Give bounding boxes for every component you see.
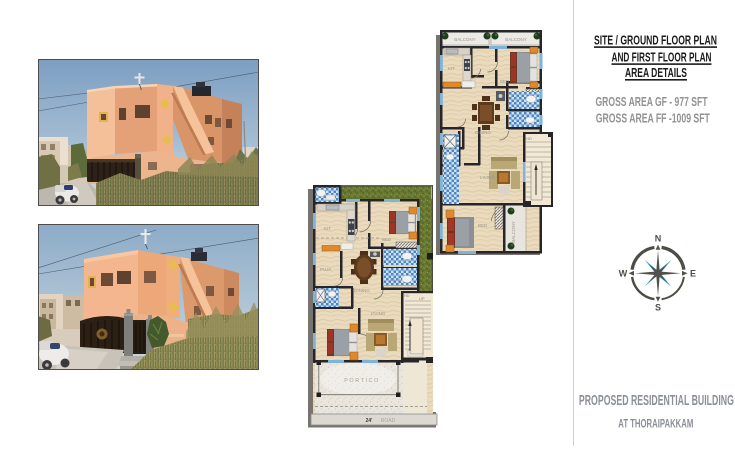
svg-text:BALCONY: BALCONY (454, 37, 476, 42)
svg-text:S: S (655, 303, 661, 313)
svg-text:DINING: DINING (475, 130, 491, 135)
svg-text:N: N (655, 234, 662, 244)
svg-text:BATH: BATH (390, 277, 400, 282)
svg-text:BALCONY: BALCONY (505, 37, 527, 42)
svg-text:SITE / GROUND FLOOR PLAN: SITE / GROUND FLOOR PLAN (594, 32, 717, 47)
svg-text:HD: HD (404, 294, 410, 298)
svg-text:W: W (619, 269, 628, 279)
svg-text:PORTICO: PORTICO (344, 378, 379, 384)
svg-text:KIT: KIT (324, 226, 331, 231)
svg-text:LIVING: LIVING (480, 175, 495, 180)
svg-text:DINING: DINING (354, 288, 370, 293)
svg-text:BALCONY: BALCONY (511, 221, 516, 243)
svg-text:BED: BED (478, 223, 488, 228)
svg-text:PUJA: PUJA (320, 267, 332, 272)
svg-text:ROAD: ROAD (381, 418, 396, 424)
svg-text:HD: HD (526, 136, 532, 141)
svg-text:AND FIRST FLOOR PLAN: AND FIRST FLOOR PLAN (612, 49, 712, 64)
svg-text:UP: UP (419, 296, 425, 301)
svg-text:E: E (690, 269, 696, 279)
svg-text:KIT: KIT (448, 66, 455, 71)
svg-text:BED: BED (382, 237, 392, 242)
svg-text:PROPOSED RESIDENTIAL BUILDING: PROPOSED RESIDENTIAL BUILDING (579, 393, 734, 409)
svg-text:LIVING: LIVING (371, 311, 386, 316)
svg-text:GROSS AREA GF - 977 SFT: GROSS AREA GF - 977 SFT (596, 94, 708, 109)
svg-text:24': 24' (366, 418, 373, 424)
svg-text:BED: BED (500, 79, 510, 84)
svg-text:GROSS AREA FF -1009 SFT: GROSS AREA FF -1009 SFT (596, 110, 710, 125)
svg-text:AT THORAIPAKKAM: AT THORAIPAKKAM (618, 419, 693, 431)
svg-text:AREA DETAILS: AREA DETAILS (625, 65, 687, 80)
